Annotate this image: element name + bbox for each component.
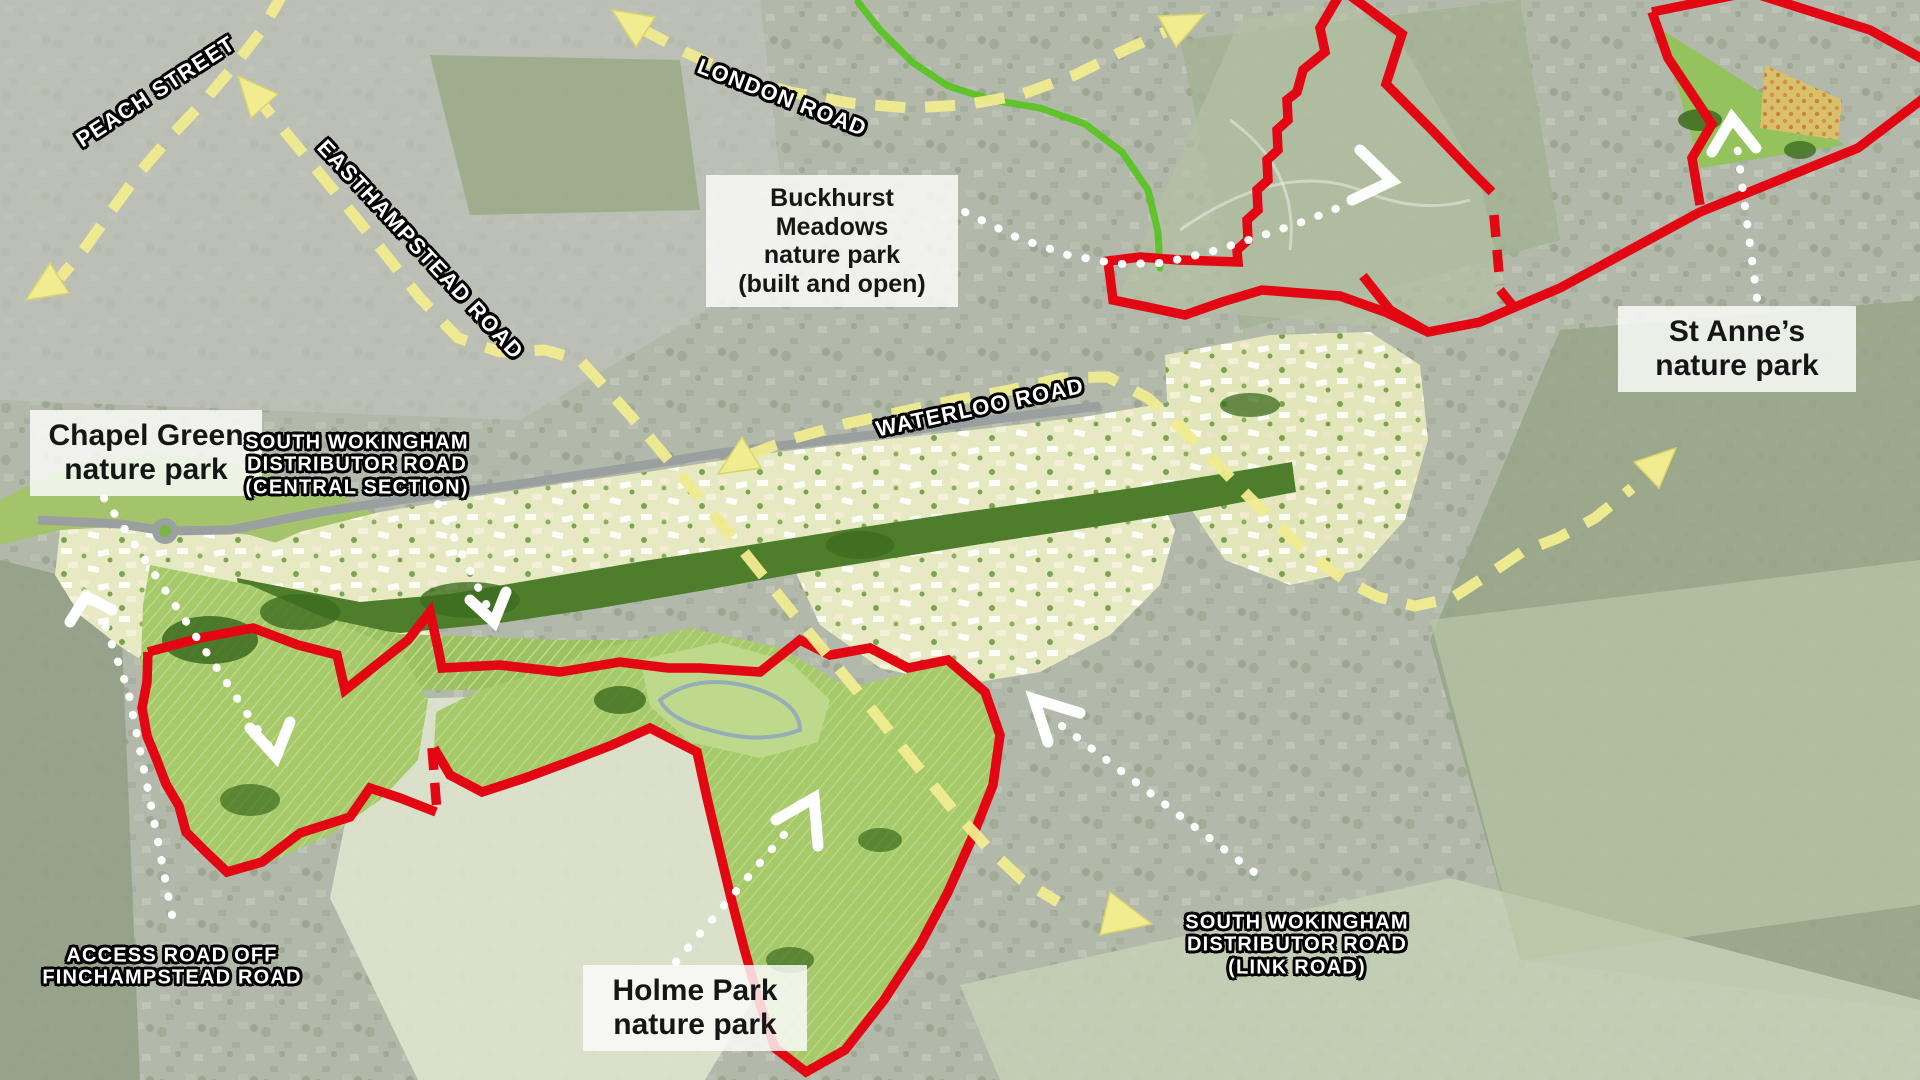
label-swdr-link: SOUTH WOKINGHAM DISTRIBUTOR ROAD (LINK R… bbox=[1185, 911, 1409, 978]
map-canvas: Buckhurst Meadows nature park (built and… bbox=[0, 0, 1920, 1080]
label-access-road: ACCESS ROAD OFF FINCHAMPSTEAD ROAD bbox=[42, 945, 301, 990]
label-chapel-green: Chapel Green nature park bbox=[30, 410, 262, 496]
label-st-annes: St Anne’s nature park bbox=[1618, 306, 1856, 392]
roundabout bbox=[159, 525, 171, 537]
label-buckhurst-meadows: Buckhurst Meadows nature park (built and… bbox=[706, 175, 958, 307]
label-holme-park: Holme Park nature park bbox=[583, 965, 807, 1051]
aerial-map-graphic bbox=[0, 0, 1920, 1080]
label-swdr-central: SOUTH WOKINGHAM DISTRIBUTOR ROAD (CENTRA… bbox=[245, 431, 469, 498]
